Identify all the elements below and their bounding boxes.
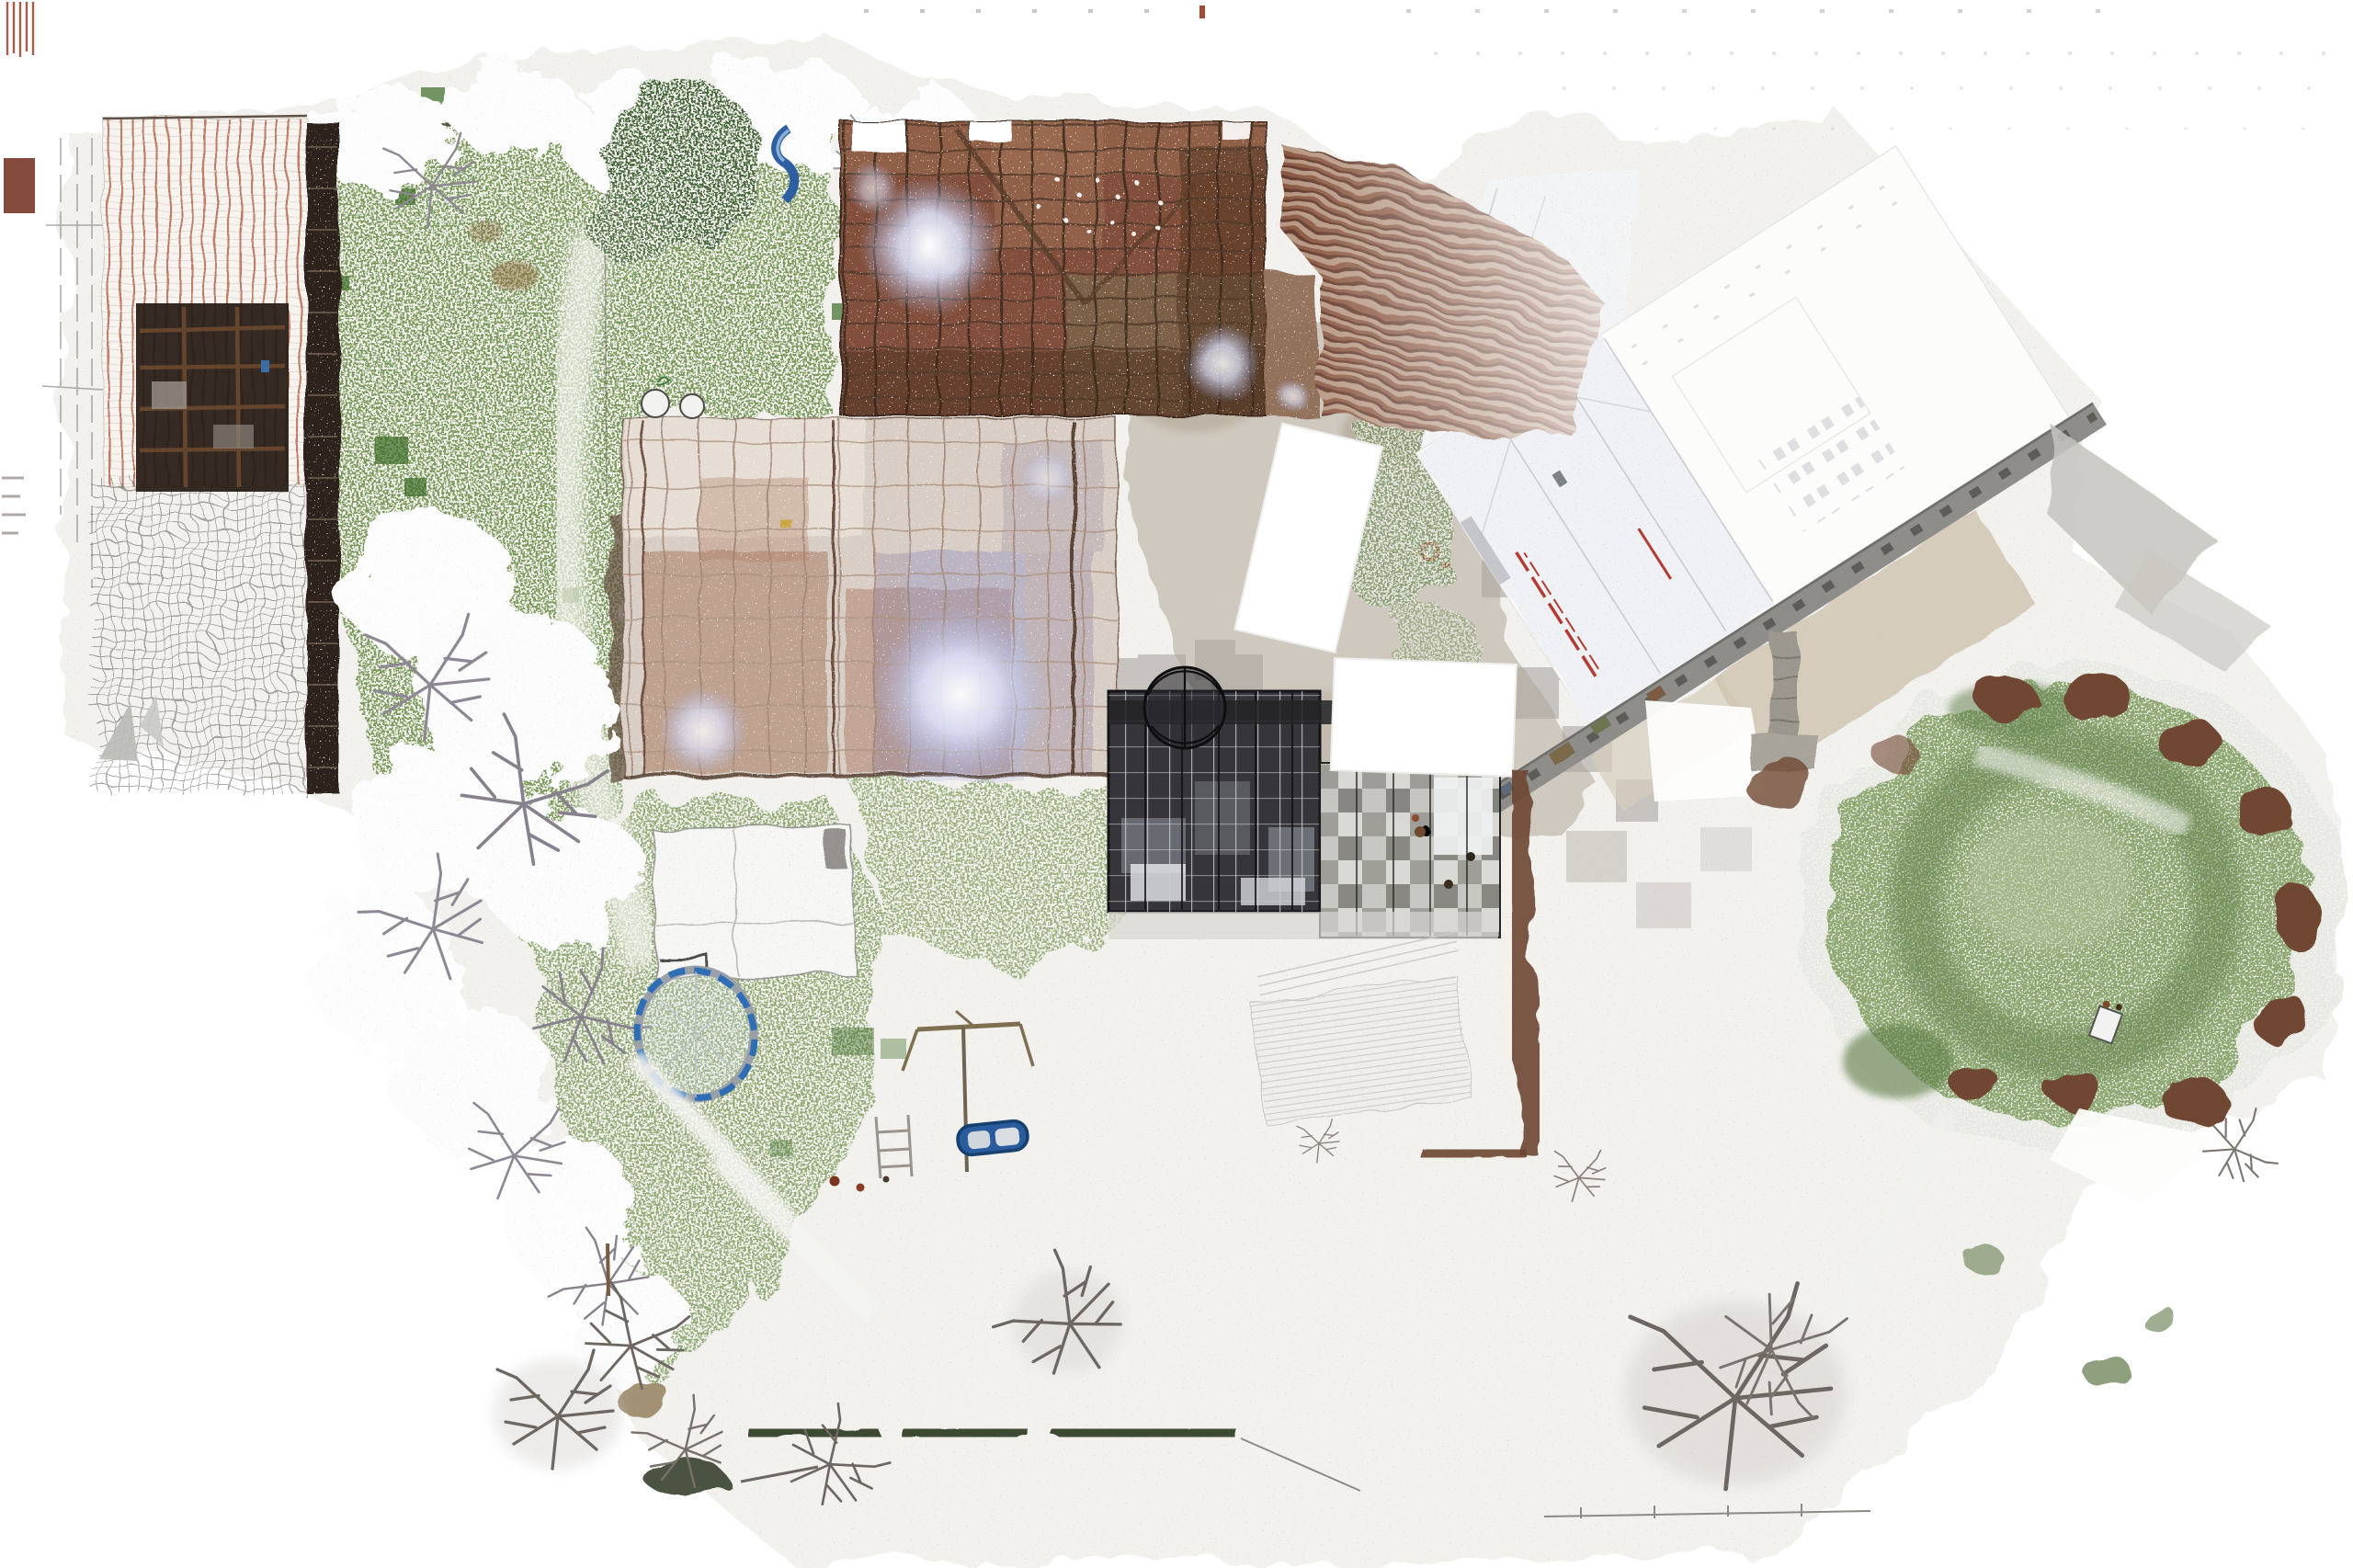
boat xyxy=(957,1119,1029,1156)
scanner-flare xyxy=(873,607,1048,781)
south-apron xyxy=(1108,912,1498,939)
dark-canopy xyxy=(584,170,685,262)
red-tick xyxy=(1199,6,1205,18)
barn-central xyxy=(608,377,1117,781)
roof-hole xyxy=(853,121,906,153)
lawn-light-center xyxy=(1967,813,2132,951)
annex-roof xyxy=(653,824,854,979)
shrub-brown xyxy=(1741,757,1814,805)
leaf-litter xyxy=(469,221,502,243)
mud-patch xyxy=(616,1380,671,1418)
barn-opening xyxy=(136,303,289,492)
figure-mark xyxy=(1415,826,1426,837)
pointcloud-orthophoto: Aerial point-cloud orthophoto — farm sit… xyxy=(0,0,2353,1568)
white-disc-table xyxy=(642,390,669,417)
boat-seat xyxy=(995,1127,1020,1147)
blue-object xyxy=(261,360,269,372)
leaf-litter xyxy=(491,261,539,290)
figure-mark xyxy=(1444,880,1453,889)
green-shrub xyxy=(2083,1355,2131,1388)
dome xyxy=(1144,667,1225,748)
hedge-south xyxy=(1420,1151,1530,1156)
figure-mark xyxy=(1466,852,1475,861)
barn-topleft xyxy=(2,2,339,795)
annex xyxy=(653,824,854,979)
figure-mark xyxy=(1412,814,1419,822)
green-shrub xyxy=(1965,1246,2006,1276)
scanner-flare xyxy=(1276,379,1309,412)
dark-edge-band xyxy=(306,122,339,793)
scanner-flare xyxy=(659,687,747,775)
corner-artifacts xyxy=(2,2,35,533)
small-figure xyxy=(883,1176,890,1183)
yellow-object xyxy=(781,520,792,528)
white-disc-table xyxy=(680,394,704,418)
boat-seat xyxy=(967,1130,991,1149)
scanner-flare xyxy=(847,163,899,214)
annex-dark-block xyxy=(825,829,847,869)
small-figure xyxy=(830,1176,840,1187)
post xyxy=(608,1244,608,1296)
bottom-hedge xyxy=(749,1430,1236,1436)
white-patch xyxy=(1434,778,1493,855)
green-shrub xyxy=(2143,1309,2180,1335)
scanner-flare xyxy=(1020,450,1075,506)
small-figure xyxy=(857,1184,865,1192)
footpath-strip xyxy=(1770,632,1798,744)
frost-canopy xyxy=(400,1011,556,1158)
white-tarp xyxy=(1331,658,1517,777)
barn-topcenter xyxy=(841,121,1320,418)
frost-canopy xyxy=(450,64,579,156)
roof-hole xyxy=(970,121,1012,142)
lawn-dark-blob xyxy=(1843,1025,1953,1098)
scanner-flare xyxy=(1184,324,1261,402)
checkered-roof xyxy=(1320,763,1500,937)
roof-hole xyxy=(1222,121,1250,140)
